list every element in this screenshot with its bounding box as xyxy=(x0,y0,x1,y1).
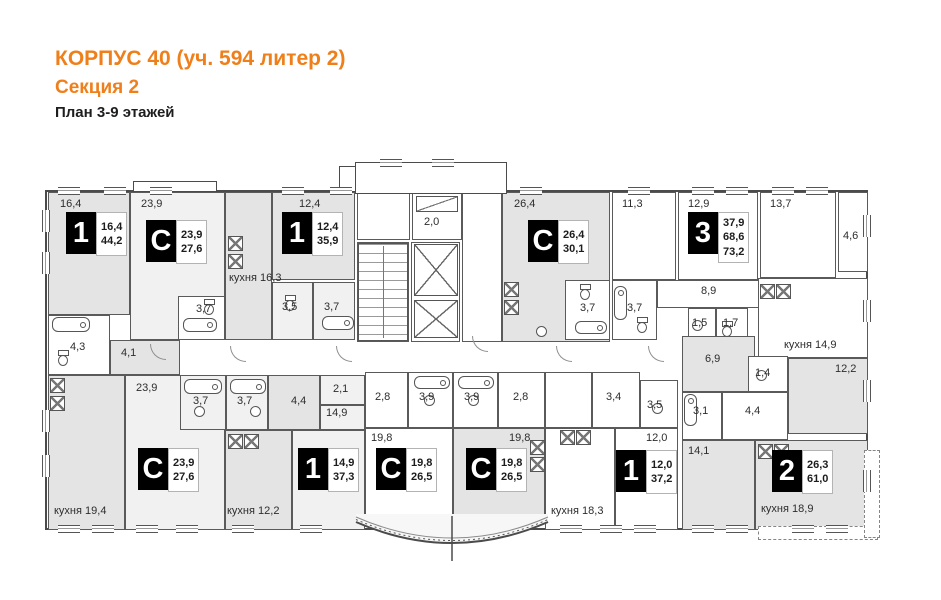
glazing-panel-icon xyxy=(416,196,458,212)
apartment-type-С: С xyxy=(138,448,168,490)
area-value: 44,2 xyxy=(101,234,122,248)
stove-icon xyxy=(560,430,575,445)
sink-icon xyxy=(194,406,205,417)
area-value: 19,8 xyxy=(501,456,522,470)
apartment-badge-6: 114,937,3 xyxy=(298,448,359,492)
apartment-badge-10: 226,361,0 xyxy=(772,450,833,494)
toilet-icon xyxy=(580,284,591,301)
room-label-balcony-2-0: 2,0 xyxy=(424,216,439,228)
room-label-studioA-hall: 2,8 xyxy=(375,391,390,403)
window-icon xyxy=(628,187,650,195)
room-label-room-12-9: 12,9 xyxy=(688,198,709,210)
room-label-kitchen-19-4: кухня 19,4 xyxy=(54,505,106,517)
room-label-room-12-2: 12,2 xyxy=(835,363,856,375)
room-label-wc-1-4: 1,4 xyxy=(755,367,770,379)
area-value: 19,8 xyxy=(411,456,432,470)
window-icon xyxy=(42,410,50,432)
window-icon xyxy=(520,187,542,195)
window-icon xyxy=(726,187,748,195)
sink-icon xyxy=(536,326,547,337)
room-label-bath-3-7: 3,7 xyxy=(324,301,339,313)
stove-icon xyxy=(228,434,243,449)
window-icon xyxy=(282,187,304,195)
area-value: 26,3 xyxy=(807,458,828,472)
window-icon xyxy=(232,525,254,533)
room-label-hall-4-4: 4,4 xyxy=(291,395,306,407)
apartment-badge-9: 112,037,2 xyxy=(616,450,677,494)
room-label-balcony-4-6: 4,6 xyxy=(843,230,858,242)
room-label-studio2-23-9-bath: 3,7 xyxy=(193,395,208,407)
room-label-studio-26-4-bath: 3,7 xyxy=(580,302,595,314)
apartment-badge-7: С19,826,5 xyxy=(376,448,437,492)
room-entrance-lobby xyxy=(462,192,502,342)
stove-icon xyxy=(758,444,773,459)
room-label-hall-6-9: 6,9 xyxy=(705,353,720,365)
room-label-hall-4-1: 4,1 xyxy=(121,347,136,359)
window-icon xyxy=(692,525,714,533)
window-icon xyxy=(432,159,454,167)
window-icon xyxy=(772,187,794,195)
room-label-studio-23-9-living: 23,9 xyxy=(141,198,162,210)
apartment-badge-8: С19,826,5 xyxy=(466,448,527,492)
apartment-areas: 19,826,5 xyxy=(406,448,437,492)
french-balcony-outline xyxy=(133,181,217,192)
apartment-type-2: 2 xyxy=(772,450,802,492)
room-label-studio-23-9-bath: 3,7 xyxy=(196,303,211,315)
stove-icon xyxy=(776,284,791,299)
room-label-studioB-bath: 3,9 xyxy=(464,391,479,403)
room-label-studio-26-4-living: 26,4 xyxy=(514,198,535,210)
floor-plan-page: КОРПУС 40 (уч. 594 литер 2) Секция 2 Пла… xyxy=(0,0,941,600)
room-label-kitchen-14-9: кухня 14,9 xyxy=(784,339,836,351)
area-value: 37,2 xyxy=(651,472,672,486)
apartment-areas: 26,430,1 xyxy=(558,220,589,264)
room-label-room-11-3: 11,3 xyxy=(622,198,643,210)
stove-icon xyxy=(50,378,65,393)
room-label-kitchen-18-3: кухня 18,3 xyxy=(551,505,603,517)
apartment-badge-0: 116,444,2 xyxy=(66,212,127,256)
window-icon xyxy=(136,525,158,533)
window-icon xyxy=(300,525,322,533)
apartment-type-С: С xyxy=(146,220,176,262)
bathtub-icon xyxy=(52,317,90,332)
room-label-bath-4-3: 4,3 xyxy=(70,341,85,353)
apartment-areas: 19,826,5 xyxy=(496,448,527,492)
stair-core-protrusion xyxy=(355,162,507,194)
apartment-type-1: 1 xyxy=(66,212,96,254)
window-icon xyxy=(42,455,50,477)
elevator-shaft-icon xyxy=(414,300,458,338)
window-icon xyxy=(863,300,871,322)
terrace-dashed-bottom xyxy=(758,526,878,540)
room-label-niche-2-1: 2,1 xyxy=(333,383,348,395)
window-icon xyxy=(560,525,582,533)
room-label-wc-1-5: 1,5 xyxy=(692,317,707,329)
apartment-areas: 14,937,3 xyxy=(328,448,359,492)
room-label-kitchen-18-9: кухня 18,9 xyxy=(761,503,813,515)
bathtub-icon xyxy=(184,379,222,394)
stove-icon xyxy=(244,434,259,449)
area-value: 16,4 xyxy=(101,220,122,234)
window-icon xyxy=(863,380,871,402)
room-label-studioA-bath: 3,9 xyxy=(419,391,434,403)
apartment-type-С: С xyxy=(376,448,406,490)
room-label-bath-3-5b: 3,5 xyxy=(647,399,662,411)
room-label-bath-3-1: 3,1 xyxy=(693,405,708,417)
stove-icon xyxy=(504,282,519,297)
room-label-bath-3-7-apt3: 3,7 xyxy=(627,302,642,314)
bathtub-icon xyxy=(322,316,354,330)
area-value: 12,4 xyxy=(317,220,338,234)
window-icon xyxy=(330,187,352,195)
area-value: 68,6 xyxy=(723,230,744,244)
apartment-areas: 37,968,673,2 xyxy=(718,212,749,263)
window-icon xyxy=(58,187,80,195)
apartment-badge-4: 337,968,673,2 xyxy=(688,212,749,263)
room-label-studioB-living: 19,8 xyxy=(509,432,530,444)
area-value: 26,4 xyxy=(563,228,584,242)
floor-plan: 16,423,93,7кухня 16,312,43,53,72,026,43,… xyxy=(0,0,941,600)
room-label-studio2-23-9-living: 23,9 xyxy=(136,382,157,394)
room-label-hall-3-4: 3,4 xyxy=(606,391,621,403)
area-value: 61,0 xyxy=(807,472,828,486)
window-icon xyxy=(806,187,828,195)
window-icon xyxy=(792,525,814,533)
room-label-bath-3-5: 3,5 xyxy=(282,301,297,313)
room-label-room-13-7: 13,7 xyxy=(770,198,791,210)
stove-icon xyxy=(504,300,519,315)
window-icon xyxy=(380,159,402,167)
room-label-kitchen-16-3: кухня 16,3 xyxy=(229,272,281,284)
room-label-bath-1-7: 1,7 xyxy=(723,317,738,329)
sink-icon xyxy=(250,406,261,417)
window-icon xyxy=(58,525,80,533)
staircase-icon xyxy=(358,243,408,341)
area-value: 35,9 xyxy=(317,234,338,248)
bay-window xyxy=(348,514,556,568)
apartment-areas: 12,435,9 xyxy=(312,212,343,256)
apartment-areas: 16,444,2 xyxy=(96,212,127,256)
room-label-studioA-living: 19,8 xyxy=(371,432,392,444)
window-icon xyxy=(176,525,198,533)
stove-icon xyxy=(760,284,775,299)
room-label-bedroom-12-0: 12,0 xyxy=(646,432,667,444)
apartment-badge-1: С23,927,6 xyxy=(146,220,207,264)
room-label-bath-3-7b: 3,7 xyxy=(237,395,252,407)
stove-icon xyxy=(576,430,591,445)
apartment-areas: 23,927,6 xyxy=(168,448,199,492)
apartment-type-1: 1 xyxy=(282,212,312,254)
room-label-room-14-9-upper: 14,9 xyxy=(326,407,347,419)
area-value: 26,5 xyxy=(411,470,432,484)
window-icon xyxy=(863,215,871,237)
window-icon xyxy=(863,470,871,492)
apartment-areas: 23,927,6 xyxy=(176,220,207,264)
window-icon xyxy=(692,187,714,195)
room-label-hall-8-9: 8,9 xyxy=(701,285,716,297)
bathtub-icon xyxy=(458,376,494,389)
stove-icon xyxy=(530,440,545,455)
room-label-bedroom-14-1: 14,1 xyxy=(688,445,709,457)
window-icon xyxy=(42,210,50,232)
room-label-hall-4-4b: 4,4 xyxy=(745,405,760,417)
window-icon xyxy=(150,187,172,195)
stove-icon xyxy=(50,396,65,411)
apartment-areas: 26,361,0 xyxy=(802,450,833,494)
toilet-icon xyxy=(637,317,648,334)
bathtub-icon xyxy=(575,321,607,334)
area-value: 26,5 xyxy=(501,470,522,484)
bathtub-icon xyxy=(183,318,217,332)
apartment-type-1: 1 xyxy=(616,450,646,492)
apartment-areas: 12,037,2 xyxy=(646,450,677,494)
window-icon xyxy=(92,525,114,533)
elevator-shaft-icon xyxy=(414,244,458,296)
window-icon xyxy=(726,525,748,533)
room-stair-vestibule xyxy=(357,192,410,240)
bathtub-icon xyxy=(414,376,450,389)
stove-icon xyxy=(530,457,545,472)
window-icon xyxy=(634,525,656,533)
area-value: 23,9 xyxy=(181,228,202,242)
apartment-type-С: С xyxy=(528,220,558,262)
room-label-bedroom-12-4: 12,4 xyxy=(299,198,320,210)
area-value: 12,0 xyxy=(651,458,672,472)
area-value: 23,9 xyxy=(173,456,194,470)
window-icon xyxy=(600,525,622,533)
area-value: 37,9 xyxy=(723,216,744,230)
room-label-bedroom-16-4: 16,4 xyxy=(60,198,81,210)
area-value: 30,1 xyxy=(563,242,584,256)
apartment-type-С: С xyxy=(466,448,496,490)
toilet-icon xyxy=(58,350,69,367)
apartment-type-3: 3 xyxy=(688,212,718,254)
apartment-badge-2: 112,435,9 xyxy=(282,212,343,256)
apartment-badge-3: С26,430,1 xyxy=(528,220,589,264)
room-label-studioB-hall: 2,8 xyxy=(513,391,528,403)
window-icon xyxy=(826,525,848,533)
area-value: 27,6 xyxy=(173,470,194,484)
terrace-dashed-right xyxy=(864,450,880,538)
window-icon xyxy=(104,187,126,195)
bathtub-icon xyxy=(230,379,266,394)
stove-icon xyxy=(228,236,243,251)
stove-icon xyxy=(228,254,243,269)
area-value: 27,6 xyxy=(181,242,202,256)
room-label-kitchen-12-2: кухня 12,2 xyxy=(227,505,279,517)
area-value: 37,3 xyxy=(333,470,354,484)
area-value: 73,2 xyxy=(723,245,744,259)
area-value: 14,9 xyxy=(333,456,354,470)
room-apt-entry xyxy=(545,372,592,428)
window-icon xyxy=(42,252,50,274)
apartment-badge-5: С23,927,6 xyxy=(138,448,199,492)
apartment-type-1: 1 xyxy=(298,448,328,490)
bathtub-icon xyxy=(614,286,627,320)
